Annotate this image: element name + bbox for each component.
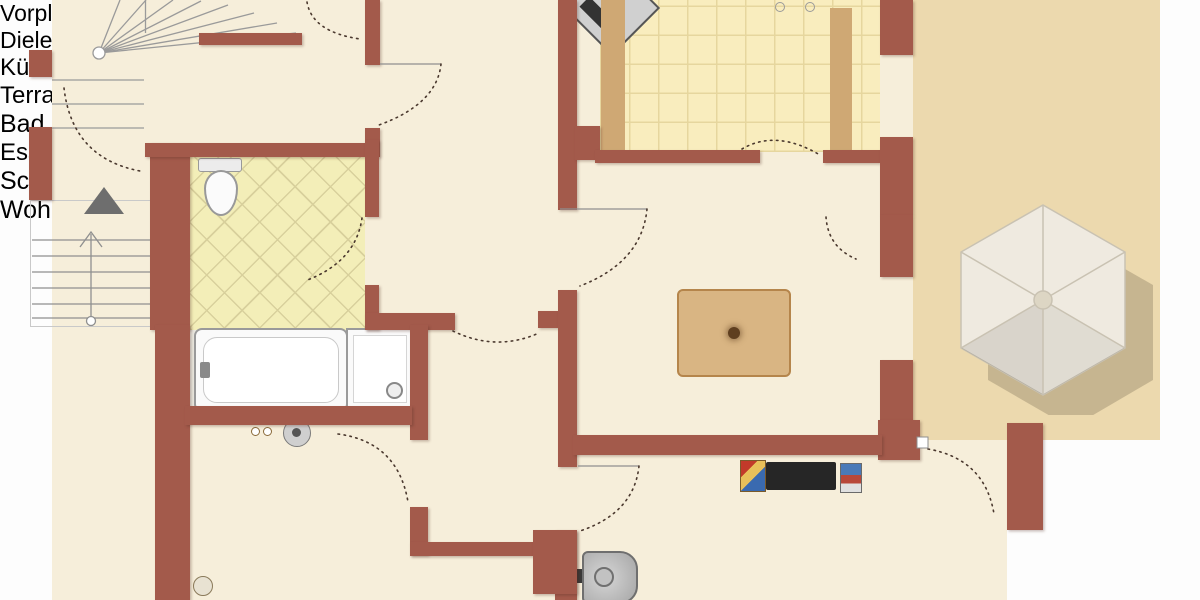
door-swing-arc [64,2,994,531]
door-leaf [380,64,647,466]
umbrella-pole [1034,291,1052,309]
parasol-umbrella [943,200,1158,415]
floor-plan: Vorplatz Diele Küche Terrasse Bad Esszim… [0,0,1200,600]
door-hinge [917,437,928,448]
